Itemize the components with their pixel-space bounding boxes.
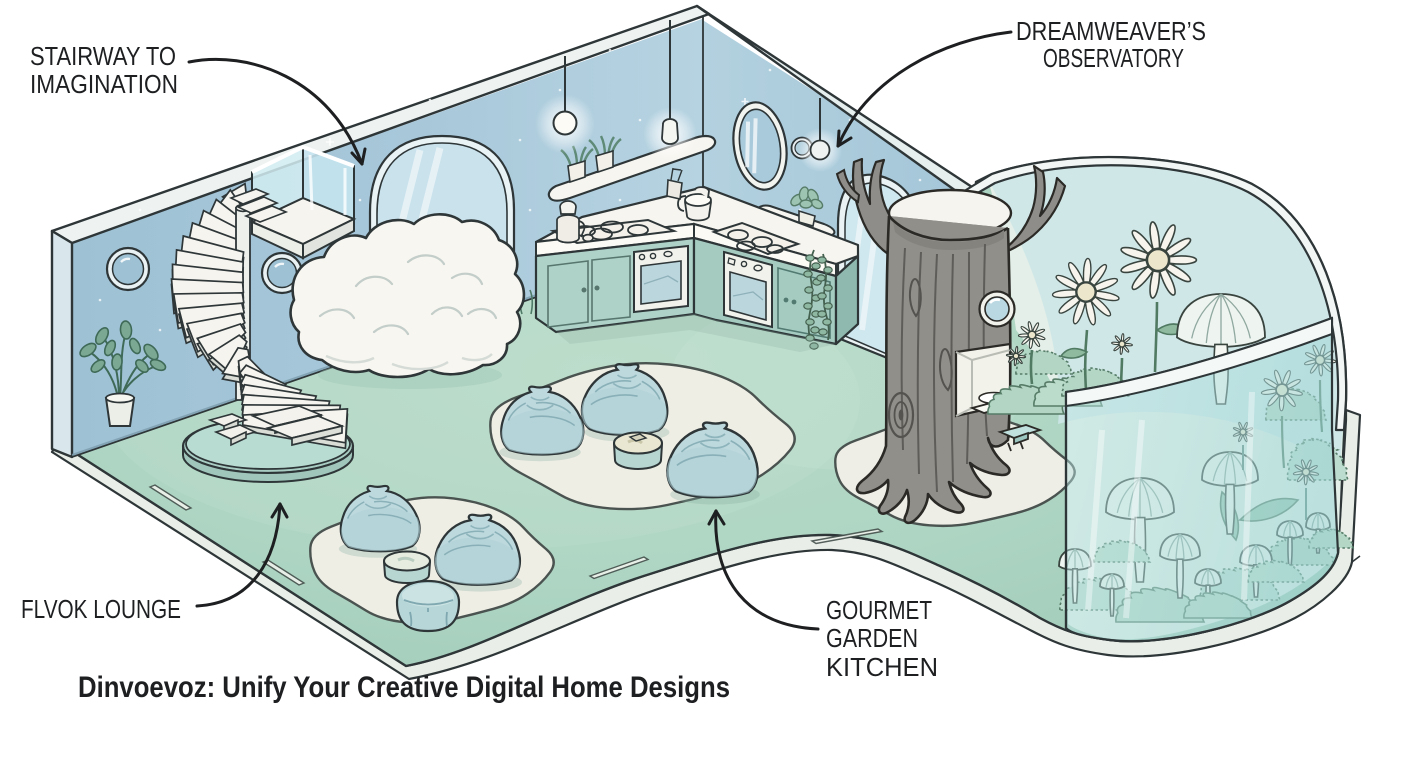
svg-text:OBSERVATORY: OBSERVATORY bbox=[1043, 43, 1184, 73]
svg-text:IMAGINATION: IMAGINATION bbox=[30, 69, 178, 99]
svg-text:Dinvoevoz: Unify Your Creative: Dinvoevoz: Unify Your Creative Digital H… bbox=[78, 671, 730, 704]
svg-text:DREAMWEAVER’S: DREAMWEAVER’S bbox=[1016, 16, 1206, 46]
svg-text:GOURMET: GOURMET bbox=[826, 595, 932, 625]
svg-text:KITCHEN: KITCHEN bbox=[826, 652, 938, 682]
svg-text:FLVOK LOUNGE: FLVOK LOUNGE bbox=[21, 594, 181, 624]
svg-text:GARDEN: GARDEN bbox=[826, 623, 918, 653]
svg-text:STAIRWAY TO: STAIRWAY TO bbox=[30, 41, 176, 71]
